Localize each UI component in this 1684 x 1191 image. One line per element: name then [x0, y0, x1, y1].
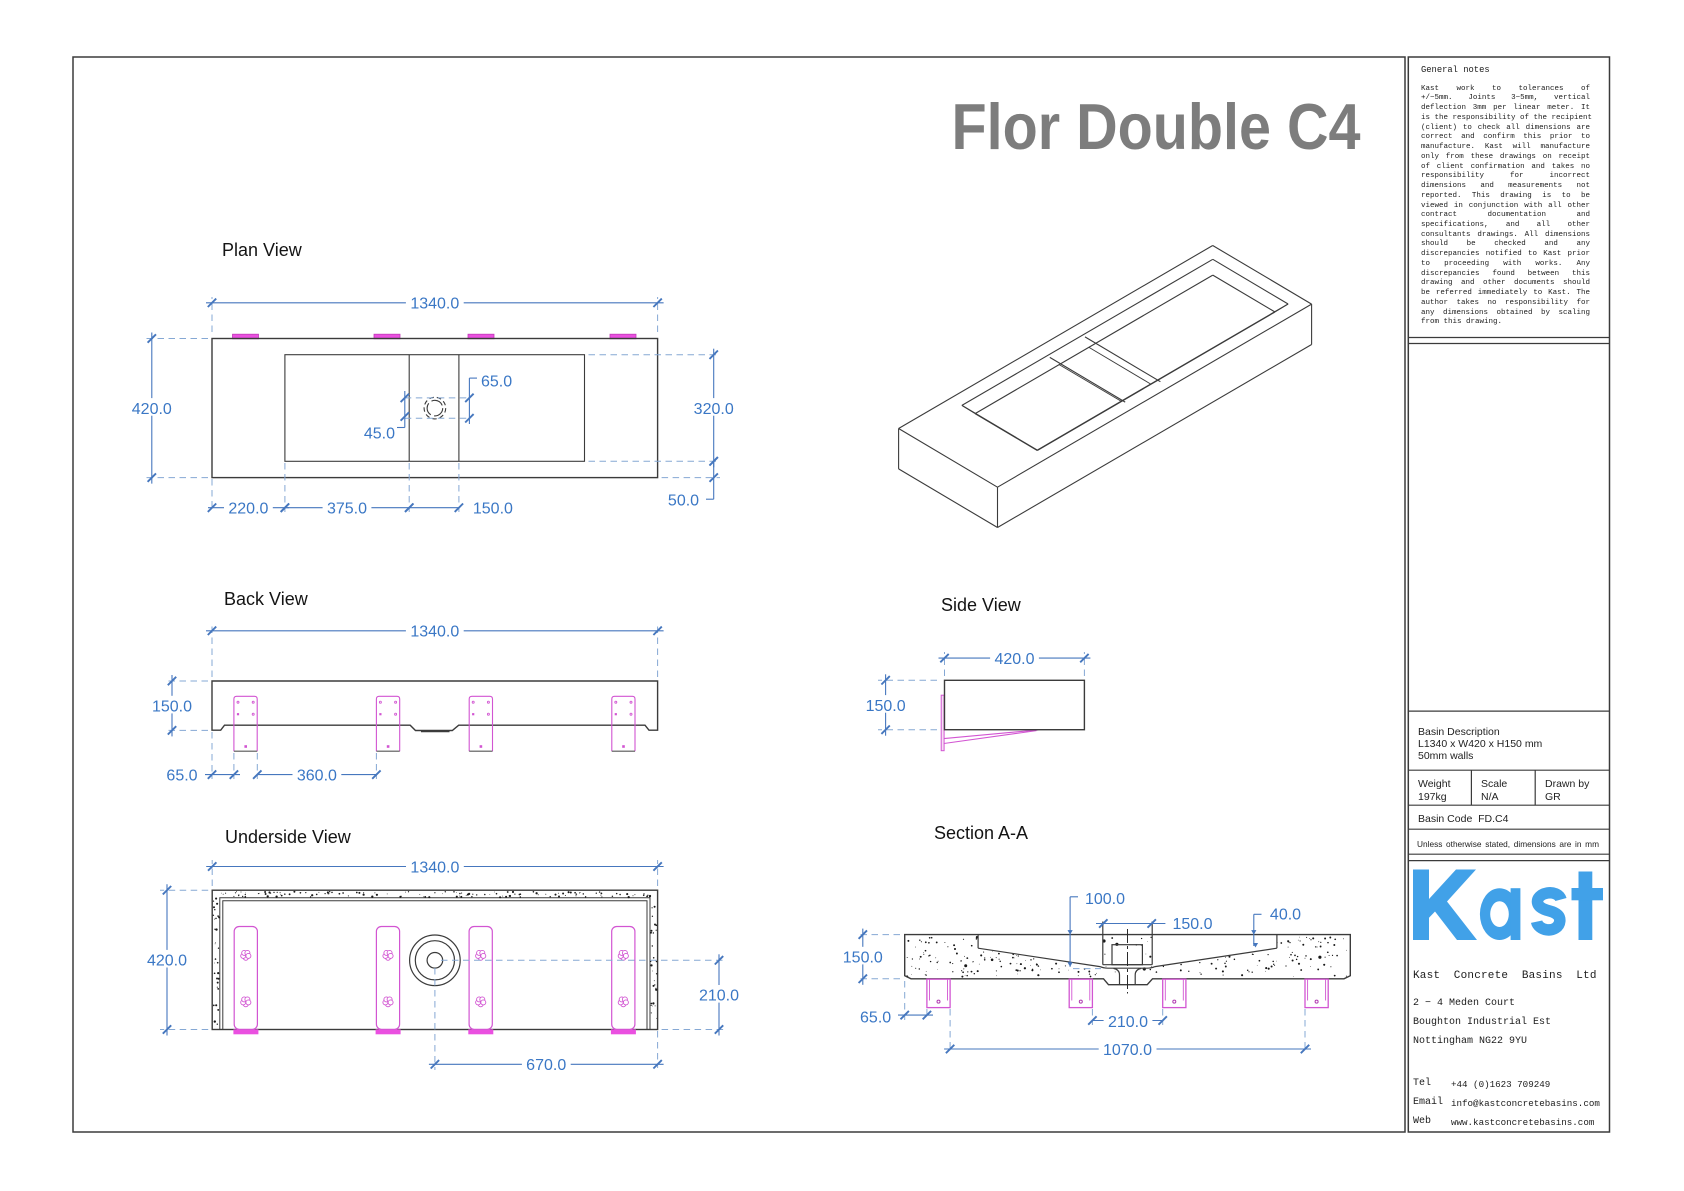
svg-text:Underside View: Underside View: [225, 827, 352, 847]
svg-text:150.0: 150.0: [866, 698, 906, 715]
svg-text:150.0: 150.0: [1172, 916, 1212, 933]
svg-text:220.0: 220.0: [228, 501, 268, 518]
svg-text:50.0: 50.0: [668, 492, 699, 509]
svg-text:150.0: 150.0: [152, 699, 192, 716]
svg-text:150.0: 150.0: [843, 950, 883, 967]
svg-text:45.0: 45.0: [364, 426, 395, 443]
svg-text:Plan View: Plan View: [222, 240, 303, 260]
svg-text:210.0: 210.0: [1108, 1014, 1148, 1031]
svg-text:Flor Double C4: Flor Double C4: [952, 90, 1361, 163]
svg-text:Section A-A: Section A-A: [934, 823, 1028, 843]
svg-text:40.0: 40.0: [1270, 907, 1301, 924]
svg-text:375.0: 375.0: [327, 501, 367, 518]
svg-text:150.0: 150.0: [473, 501, 513, 518]
svg-text:Side View: Side View: [941, 595, 1022, 615]
svg-text:65.0: 65.0: [860, 1010, 891, 1027]
svg-text:210.0: 210.0: [699, 988, 739, 1005]
svg-text:Back View: Back View: [224, 589, 309, 609]
svg-text:65.0: 65.0: [166, 767, 197, 784]
svg-text:670.0: 670.0: [526, 1057, 566, 1074]
svg-text:1340.0: 1340.0: [410, 296, 459, 313]
svg-text:65.0: 65.0: [481, 373, 512, 390]
svg-text:1070.0: 1070.0: [1103, 1042, 1152, 1059]
svg-text:320.0: 320.0: [694, 401, 734, 418]
svg-text:360.0: 360.0: [297, 767, 337, 784]
svg-text:420.0: 420.0: [132, 401, 172, 418]
svg-text:100.0: 100.0: [1085, 891, 1125, 908]
svg-text:1340.0: 1340.0: [410, 859, 459, 876]
svg-text:420.0: 420.0: [994, 651, 1034, 668]
svg-text:1340.0: 1340.0: [410, 624, 459, 641]
svg-text:420.0: 420.0: [147, 953, 187, 970]
